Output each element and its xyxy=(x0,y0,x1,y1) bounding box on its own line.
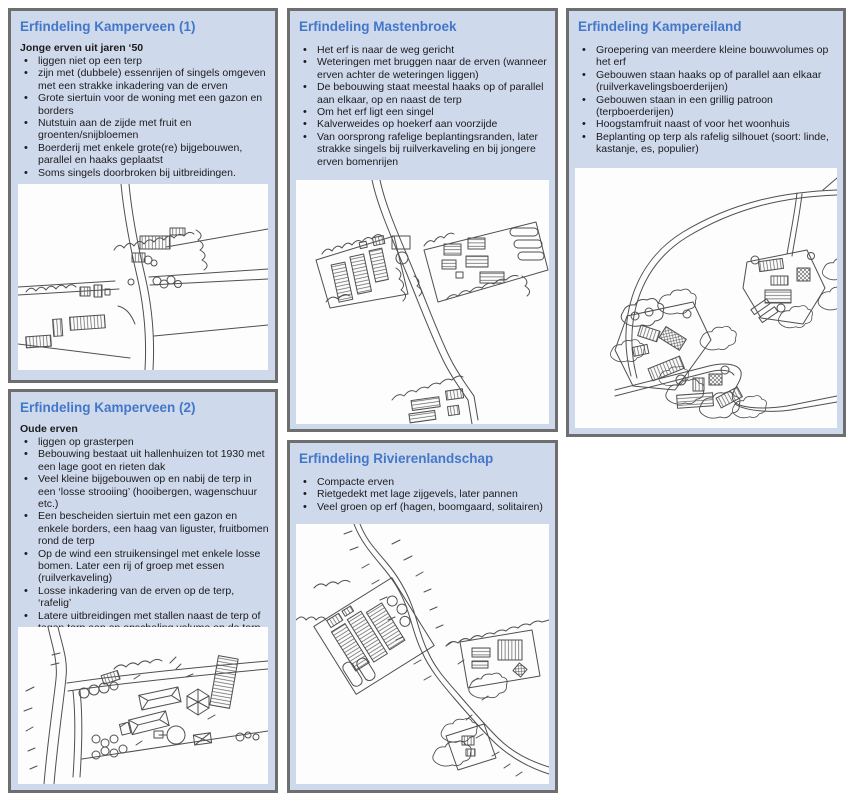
bullet: Veel kleine bijgebouwen op en nabij de t… xyxy=(21,473,269,510)
bullet: Groepering van meerdere kleine bouwvolum… xyxy=(579,44,837,69)
roads xyxy=(18,184,268,370)
hooiberg xyxy=(187,689,209,715)
bullet: Om het erf ligt een singel xyxy=(300,106,549,118)
sketch-drawing xyxy=(296,524,549,784)
bullet: Hoogstamfruit naast of voor het woonhuis xyxy=(579,118,837,130)
bullet: Nutstuin aan de zijde met fruit en groen… xyxy=(21,117,269,142)
panel-title: Erfindeling Kamperveen (2) xyxy=(11,392,275,415)
panel-mastenbroek: Erfindeling Mastenbroek Het erf is naar … xyxy=(287,8,558,432)
bullet: Compacte erven xyxy=(300,476,549,488)
bullet: De bebouwing staat meestal haaks op of p… xyxy=(300,81,549,106)
bullet-list: liggen niet op een terp zijn met (dubbel… xyxy=(11,55,275,179)
farm-sketch-kamperveen-2 xyxy=(18,627,268,784)
bullet: liggen niet op een terp xyxy=(21,55,269,67)
farm-sketch-rivierenlandschap xyxy=(296,524,549,784)
sketch-drawing xyxy=(18,627,268,784)
sketch-drawing xyxy=(575,168,837,428)
bullet: Op de wind een struikensingel met enkele… xyxy=(21,548,269,585)
bullet-list: liggen op grasterpen Bebouwing bestaat u… xyxy=(11,436,275,635)
panel-kamperveen-1: Erfindeling Kamperveen (1) Jonge erven u… xyxy=(8,8,278,383)
bottom-farm-cluster xyxy=(615,364,837,418)
panel-title: Erfindeling Kamperveen (1) xyxy=(11,11,275,34)
bullet: Boerderij met enkele grote(re) bijgebouw… xyxy=(21,142,269,167)
panel-kampereiland: Erfindeling Kampereiland Groepering van … xyxy=(566,8,846,437)
bullet: Kalverweides op hoekerf aan voorzijde xyxy=(300,118,549,130)
panel-subtitle: Oude erven xyxy=(11,423,275,435)
roads xyxy=(44,627,268,784)
bullet: zijn met (dubbele) essenrijen of singels… xyxy=(21,67,269,92)
bottom-farm-cluster xyxy=(392,376,464,423)
middle-farmstead xyxy=(446,620,549,698)
panel-title: Erfindeling Rivierenlandschap xyxy=(290,443,555,466)
bullet-list: Het erf is naar de weg gericht Weteringe… xyxy=(290,44,555,168)
panel-title: Erfindeling Kampereiland xyxy=(569,11,843,34)
bullet: Bebouwing bestaat uit hallenhuizen tot 1… xyxy=(21,448,269,473)
panel-rivierenlandschap: Erfindeling Rivierenlandschap Compacte e… xyxy=(287,440,558,793)
farm-sketch-kamperveen-1 xyxy=(18,184,268,370)
bullet: Losse inkadering van de erven op de terp… xyxy=(21,585,269,610)
buildings xyxy=(26,228,185,348)
bullet: Gebouwen staan haaks op of parallel aan … xyxy=(579,69,837,94)
left-farm-cluster xyxy=(316,235,408,308)
right-terp-island xyxy=(743,250,837,328)
bullet: Gebouwen staan in een grillig patroon (t… xyxy=(579,94,837,119)
farm-sketch-mastenbroek xyxy=(296,180,549,424)
bullet: Beplanting op terp als rafelig silhouet … xyxy=(579,131,837,156)
panel-title: Erfindeling Mastenbroek xyxy=(290,11,555,34)
bullet: Het erf is naar de weg gericht xyxy=(300,44,549,56)
bullet: Soms singels doorbroken bij uitbreidinge… xyxy=(21,167,269,179)
bullet: Grote siertuin voor de woning met een ga… xyxy=(21,92,269,117)
bullet: Rietgedekt met lage zijgevels, later pan… xyxy=(300,488,549,500)
bullet: Veel groen op erf (hagen, boomgaard, sol… xyxy=(300,501,549,513)
bullet: Van oorsprong rafelige beplantingsranden… xyxy=(300,131,549,168)
panel-kamperveen-2: Erfindeling Kamperveen (2) Oude erven li… xyxy=(8,389,278,793)
tree-rows xyxy=(26,230,207,292)
panel-subtitle: Jonge erven uit jaren ‘50 xyxy=(11,42,275,54)
sketch-drawing xyxy=(18,184,268,370)
buildings xyxy=(101,656,238,745)
sketch-drawing xyxy=(296,180,549,424)
left-farmstead xyxy=(296,578,434,695)
document-page: { "theme": { "panel_bg": "#cfd9ec", "pan… xyxy=(0,0,854,807)
right-farm-cluster xyxy=(414,222,548,302)
bullet-list: Compacte erven Rietgedekt met lage zijge… xyxy=(290,476,555,513)
bullet-list: Groepering van meerdere kleine bouwvolum… xyxy=(569,44,843,156)
bullet: liggen op grasterpen xyxy=(21,436,269,448)
farm-sketch-kampereiland xyxy=(575,168,837,428)
bullet: Een bescheiden siertuin met een gazon en… xyxy=(21,510,269,547)
bullet: Weteringen met bruggen naar de erven (wa… xyxy=(300,56,549,81)
